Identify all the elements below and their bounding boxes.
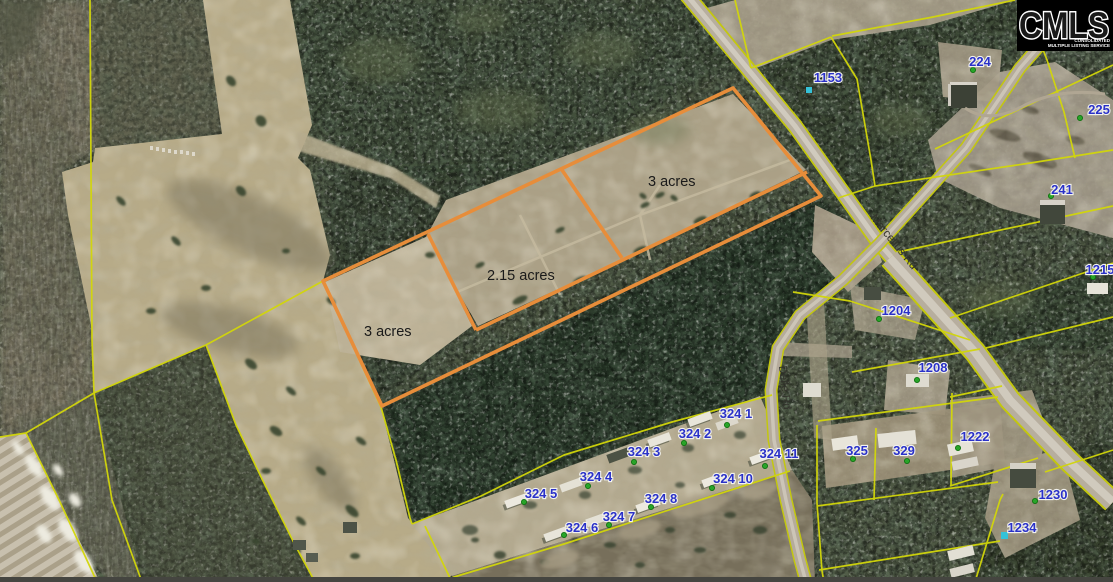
svg-text:1204: 1204 bbox=[882, 303, 912, 318]
svg-text:1208: 1208 bbox=[919, 360, 948, 375]
svg-text:324 6: 324 6 bbox=[566, 520, 599, 535]
svg-text:324 10: 324 10 bbox=[713, 471, 753, 486]
svg-text:224: 224 bbox=[969, 54, 991, 69]
svg-text:225: 225 bbox=[1088, 102, 1110, 117]
svg-text:3 acres: 3 acres bbox=[648, 174, 696, 190]
svg-text:241: 241 bbox=[1051, 182, 1073, 197]
svg-text:2.15 acres: 2.15 acres bbox=[487, 268, 555, 284]
svg-text:324 2: 324 2 bbox=[679, 426, 712, 441]
svg-text:1222: 1222 bbox=[961, 429, 990, 444]
svg-text:324 8: 324 8 bbox=[645, 491, 678, 506]
svg-text:1230: 1230 bbox=[1039, 487, 1068, 502]
svg-text:329: 329 bbox=[893, 443, 915, 458]
svg-text:324 5: 324 5 bbox=[525, 486, 558, 501]
svg-text:3 acres: 3 acres bbox=[364, 324, 412, 340]
svg-text:MULTIPLE LISTING SERVICE: MULTIPLE LISTING SERVICE bbox=[1048, 43, 1110, 48]
svg-text:324 7: 324 7 bbox=[603, 509, 636, 524]
svg-text:324 1: 324 1 bbox=[720, 406, 753, 421]
svg-text:324 4: 324 4 bbox=[580, 469, 613, 484]
svg-text:1153: 1153 bbox=[814, 70, 842, 85]
svg-text:324 3: 324 3 bbox=[628, 444, 661, 459]
svg-text:325: 325 bbox=[846, 443, 868, 458]
svg-text:324 11: 324 11 bbox=[759, 446, 798, 461]
svg-text:1234: 1234 bbox=[1008, 520, 1038, 535]
svg-text:1215: 1215 bbox=[1086, 262, 1113, 277]
